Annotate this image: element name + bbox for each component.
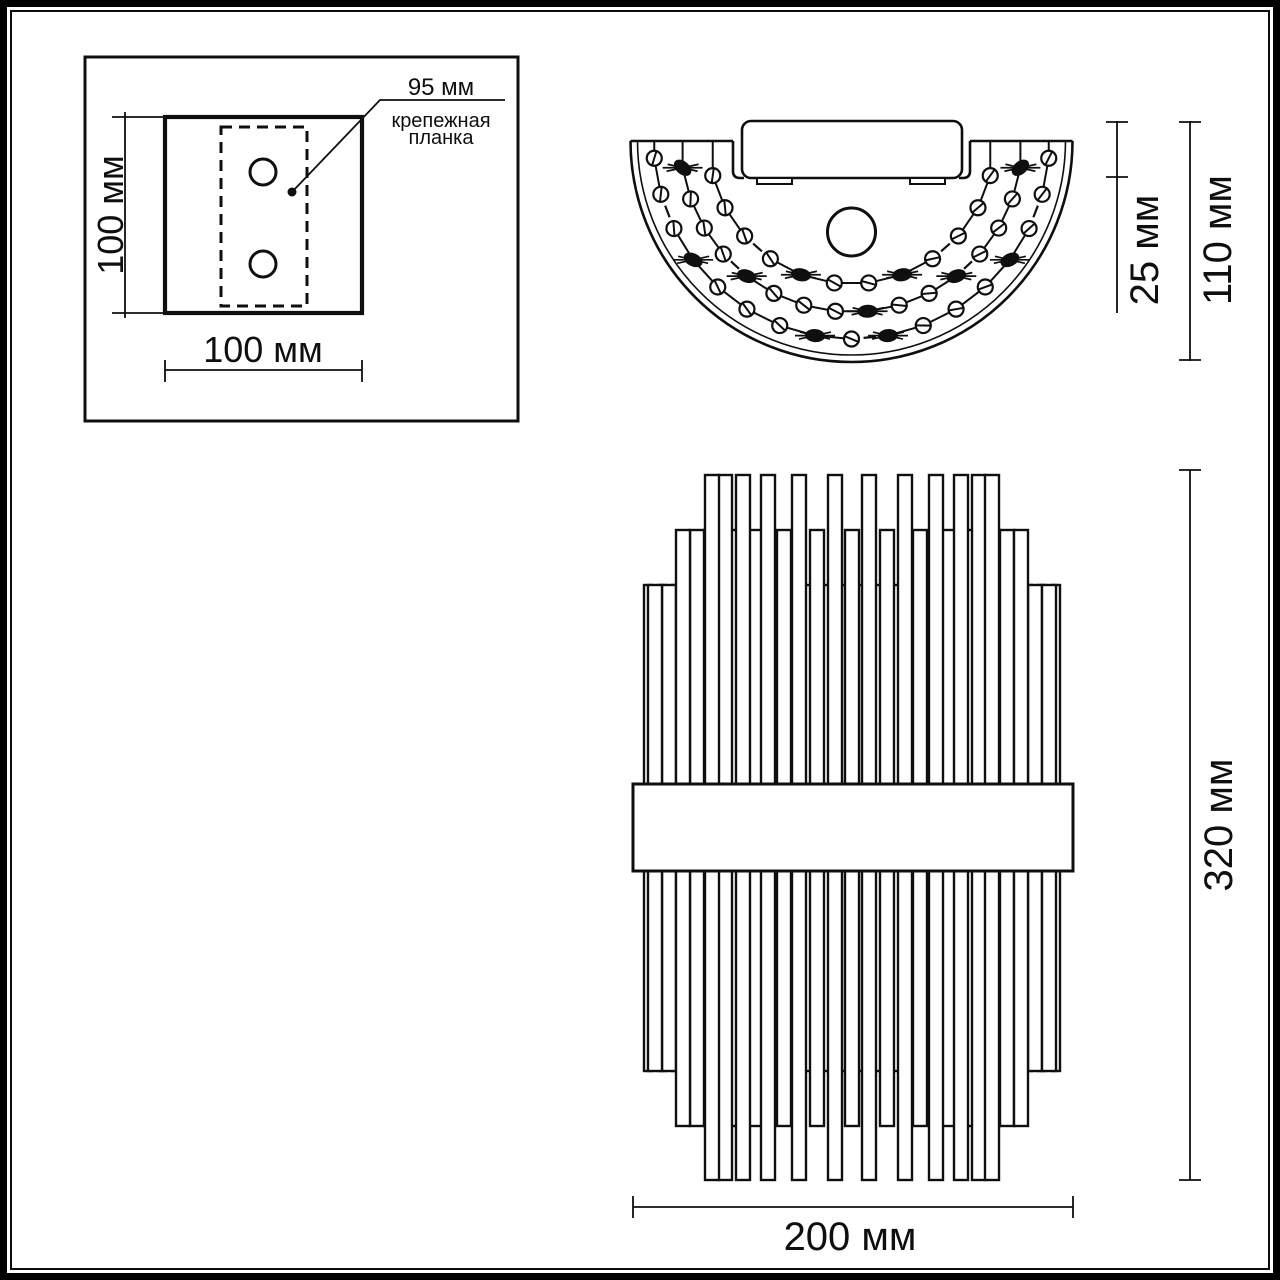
black-bead xyxy=(736,267,758,285)
plate-width-label: 100 мм xyxy=(203,329,323,370)
chain-dash xyxy=(941,244,950,252)
black-bead xyxy=(878,329,898,343)
chain-dash xyxy=(753,244,762,252)
bead-slash xyxy=(673,220,674,237)
drawing-sheet: { "title": "wall-lamp dimensional drawin… xyxy=(0,0,1280,1280)
chain-dash xyxy=(964,261,972,268)
black-bead xyxy=(682,250,704,269)
screw-hole-bottom xyxy=(250,251,276,277)
top-depth-label: 110 мм xyxy=(1196,175,1240,305)
black-bead xyxy=(805,329,825,343)
chain-dash xyxy=(665,206,669,218)
canopy-foot-right xyxy=(910,178,945,184)
leader-dot xyxy=(288,188,297,197)
canopy-foot-left xyxy=(757,178,792,184)
black-bead xyxy=(892,267,913,282)
bracket-dashed-outline xyxy=(221,127,307,306)
lamp-socket xyxy=(828,208,876,256)
plate-outline xyxy=(165,117,362,313)
bead-slash xyxy=(690,190,691,207)
front-view xyxy=(633,470,1201,1218)
screw-hole-top xyxy=(250,159,276,185)
chain-dash xyxy=(731,261,739,268)
chain-dash xyxy=(864,337,876,338)
front-height-label: 320 мм xyxy=(1197,759,1241,892)
technical-drawing: 100 мм 100 мм 95 мм крепежная планка 25 … xyxy=(0,0,1280,1280)
black-bead xyxy=(945,267,967,285)
bracket-offset-label: 95 мм xyxy=(408,74,474,101)
canopy-box xyxy=(742,121,962,178)
top-view xyxy=(631,121,1202,362)
black-bead xyxy=(790,267,811,282)
chain-dash xyxy=(1033,206,1037,218)
canopy-depth-label: 25 мм xyxy=(1123,195,1167,306)
bracket-name-line2: планка xyxy=(409,127,475,149)
black-bead xyxy=(858,305,878,318)
plate-height-label: 100 мм xyxy=(90,155,131,275)
black-bead xyxy=(999,250,1021,269)
front-width-label: 200 мм xyxy=(784,1215,917,1259)
center-band xyxy=(633,784,1073,871)
